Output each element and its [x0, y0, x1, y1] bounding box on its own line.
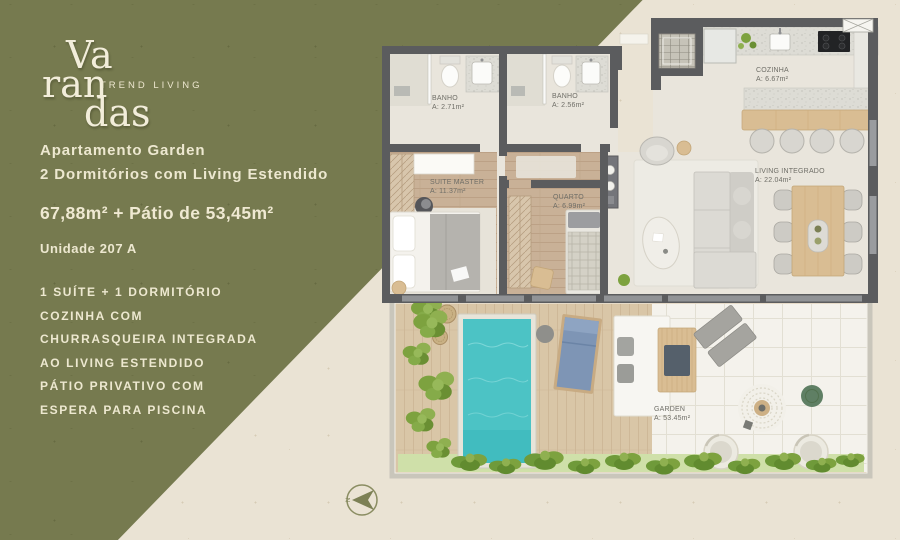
slat-bench — [658, 328, 696, 392]
ottoman — [536, 325, 554, 343]
cooktop — [818, 31, 850, 52]
brochure-page: Va ran das TREND LIVING Apartamento Gard… — [0, 0, 900, 540]
round-rug-firepit — [738, 384, 786, 432]
floor-plant — [618, 274, 630, 286]
apartment — [382, 18, 878, 303]
hall-rug — [516, 156, 576, 178]
compass-north-label: N — [346, 498, 352, 502]
fridge — [704, 29, 736, 63]
side-table — [677, 141, 691, 155]
l-sofa — [694, 172, 756, 288]
bar-counter — [742, 110, 876, 130]
entry-step — [620, 34, 648, 44]
kitchen-back-counter — [744, 88, 876, 112]
quarto-bed — [566, 210, 602, 294]
garden-area — [392, 298, 870, 477]
suite-shelf — [414, 154, 474, 174]
counter-plant — [741, 33, 751, 43]
dining-set — [774, 186, 862, 276]
churrasqueira — [659, 34, 695, 68]
quarto-pouf — [530, 266, 554, 290]
vent-box — [843, 19, 873, 32]
green-pouf — [801, 385, 823, 407]
armchair — [640, 137, 674, 165]
kitchen-sink — [770, 34, 790, 50]
suite-bed — [390, 212, 480, 292]
floorplan-drawing: BANHO A: 2.71m² BANHO A: 2.56m² SUITE MA… — [0, 0, 900, 540]
pool — [458, 314, 536, 468]
compass-icon: N — [346, 485, 377, 515]
suite-side-table — [392, 281, 406, 295]
